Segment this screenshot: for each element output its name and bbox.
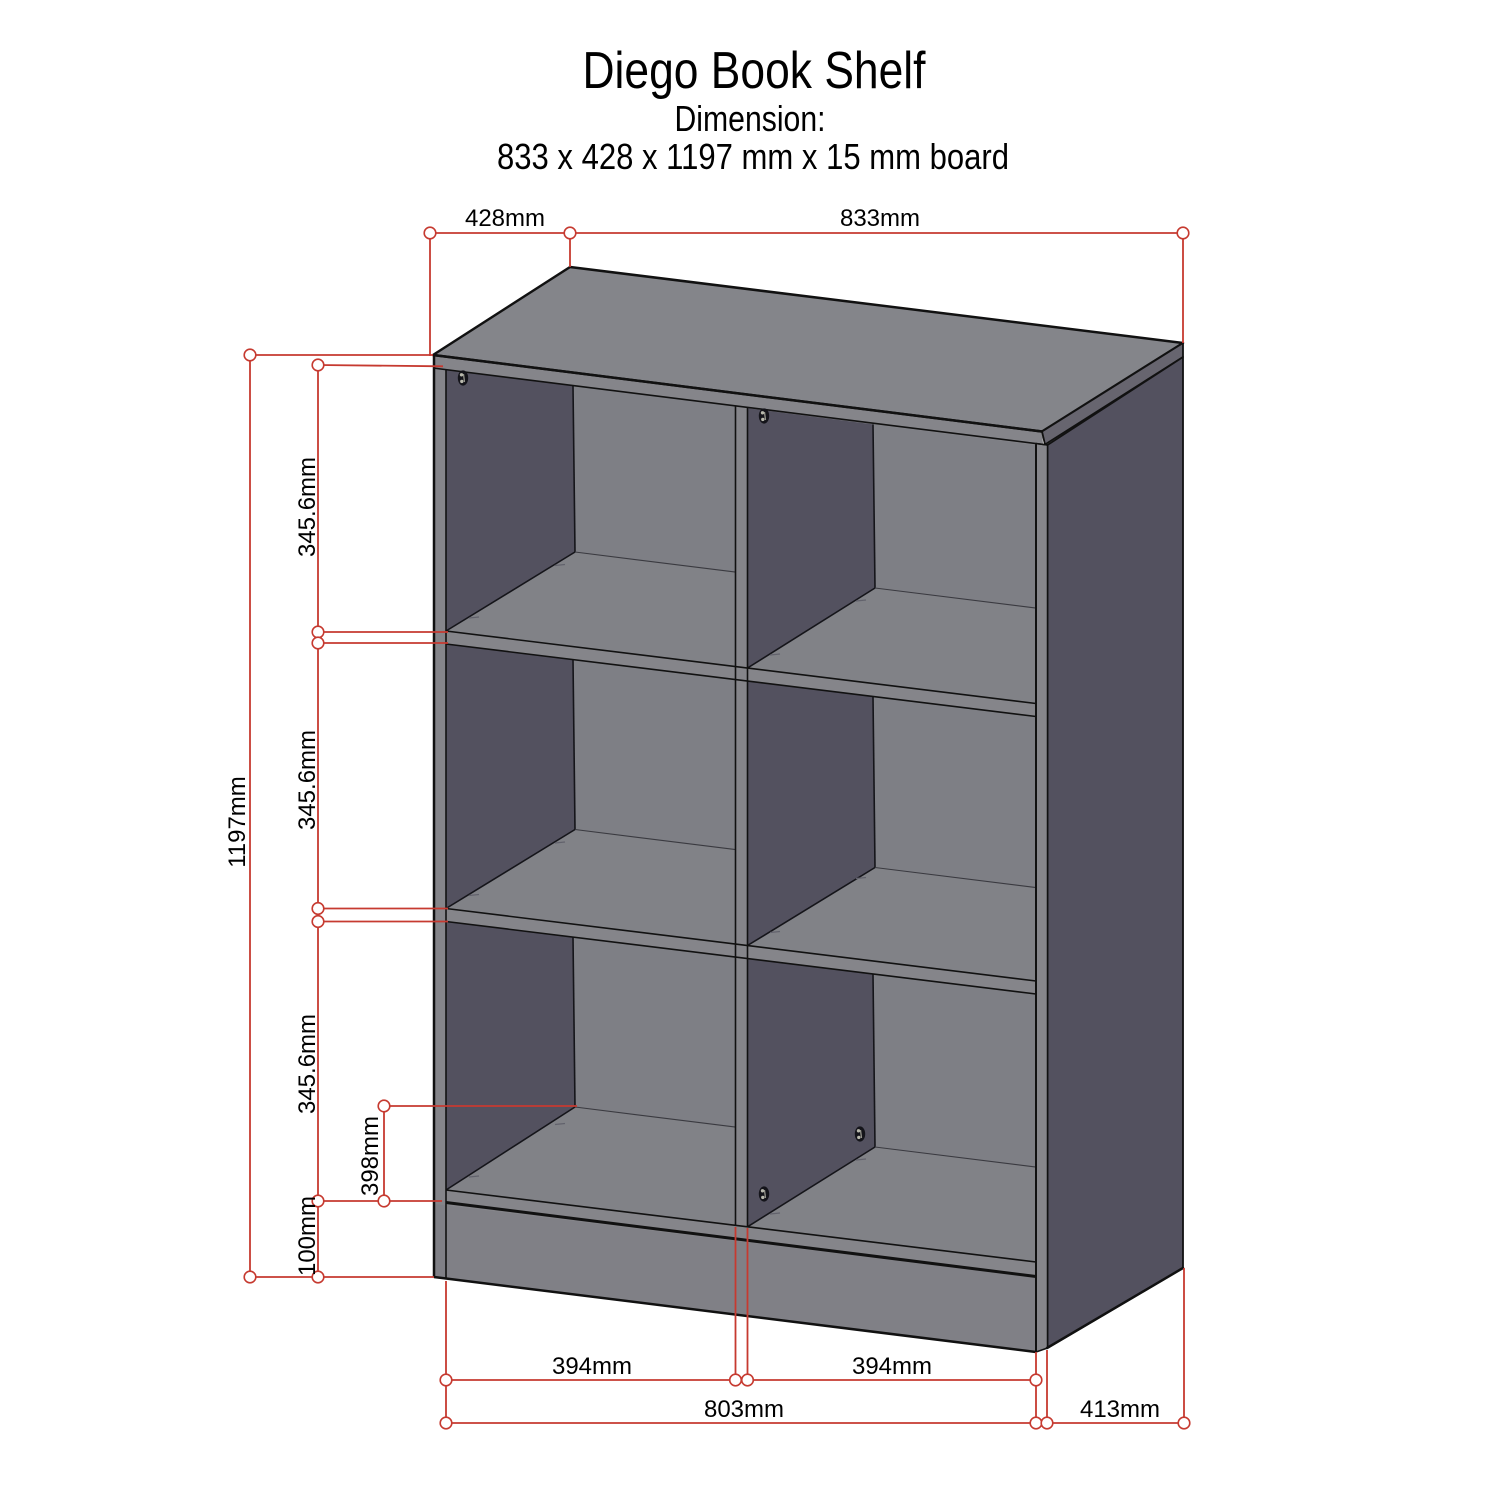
svg-text:345.6mm: 345.6mm <box>294 457 321 557</box>
svg-text:100mm: 100mm <box>294 1196 321 1276</box>
svg-text:833mm: 833mm <box>840 205 920 232</box>
svg-text:345.6mm: 345.6mm <box>294 1014 321 1114</box>
svg-text:Dimension:: Dimension: <box>675 98 826 139</box>
svg-text:398mm: 398mm <box>357 1116 384 1196</box>
svg-text:413mm: 413mm <box>1080 1396 1160 1423</box>
svg-text:1197mm: 1197mm <box>224 776 251 868</box>
svg-text:394mm: 394mm <box>852 1353 932 1380</box>
svg-text:345.6mm: 345.6mm <box>294 730 321 830</box>
svg-text:394mm: 394mm <box>552 1353 632 1380</box>
svg-text:803mm: 803mm <box>704 1396 784 1423</box>
svg-text:Diego Book Shelf: Diego Book Shelf <box>583 42 926 100</box>
svg-text:833 x 428 x 1197 mm x 15 mm bo: 833 x 428 x 1197 mm x 15 mm board <box>497 136 1009 177</box>
svg-text:428mm: 428mm <box>465 205 545 232</box>
